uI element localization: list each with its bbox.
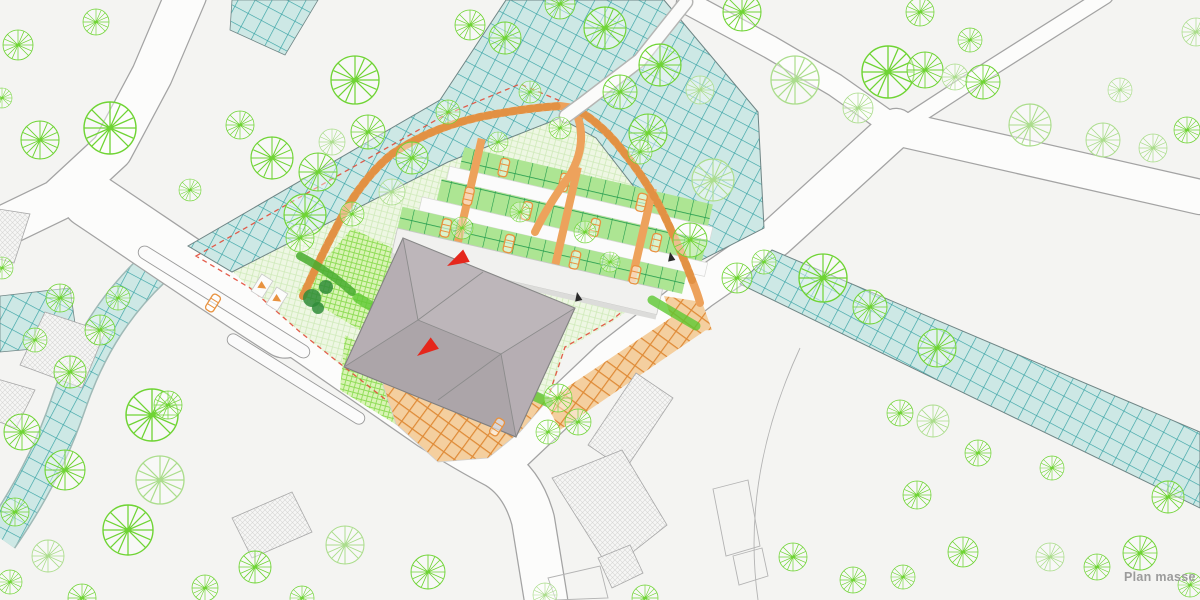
tree-bright <box>958 28 982 52</box>
tree-pale <box>1009 104 1051 146</box>
tree-bright <box>340 202 364 226</box>
tree-bright <box>1152 481 1184 513</box>
tree-pale <box>136 456 184 504</box>
tree-bright <box>906 0 934 26</box>
tree-bright <box>628 140 652 164</box>
tree-bright <box>544 384 572 412</box>
tree-bright <box>154 391 182 419</box>
tree-bright <box>396 142 428 174</box>
tree-bright <box>918 329 956 367</box>
tree-bright <box>510 202 530 222</box>
tree-pale <box>326 526 364 564</box>
tree-bright <box>948 537 978 567</box>
tree-bright <box>106 286 130 310</box>
tree-bright <box>853 290 887 324</box>
tree-bright <box>1174 117 1200 143</box>
tree-bright <box>83 9 109 35</box>
tree-bright <box>54 356 86 388</box>
shrub-dark <box>312 302 324 314</box>
tree-bright <box>455 10 485 40</box>
shrub-dark <box>319 280 333 294</box>
tree-bright <box>411 555 445 589</box>
tree-bright <box>4 414 40 450</box>
tree-bright <box>1 498 29 526</box>
tree-bright <box>179 179 201 201</box>
tree-bright <box>488 132 508 152</box>
tree-bright <box>226 111 254 139</box>
tree-bright <box>966 65 1000 99</box>
tree-bright <box>489 22 521 54</box>
site-plan-page: Plan masse <box>0 0 1200 600</box>
tree-bright <box>103 505 153 555</box>
tree-bright <box>549 117 571 139</box>
tree-pale <box>1036 543 1064 571</box>
tree-bright <box>23 328 47 352</box>
tree-bright <box>1123 536 1157 570</box>
tree-bright <box>21 121 59 159</box>
tree-bright <box>600 252 620 272</box>
tree-pale <box>843 93 873 123</box>
tree-bright <box>351 115 385 149</box>
tree-pale <box>942 64 968 90</box>
tree-pale <box>692 159 734 201</box>
tree-bright <box>887 400 913 426</box>
tree-bright <box>286 224 314 252</box>
tree-pale <box>686 76 714 104</box>
tree-pale <box>32 540 64 572</box>
tree-bright <box>907 52 943 88</box>
tree-bright <box>85 315 115 345</box>
tree-bright <box>299 153 337 191</box>
tree-bright <box>519 81 541 103</box>
tree-bright <box>673 223 707 257</box>
tree-bright <box>799 254 847 302</box>
tree-pale <box>917 405 949 437</box>
tree-bright <box>584 7 626 49</box>
tree-pale <box>319 129 345 155</box>
tree-bright <box>192 575 218 600</box>
tree-bright <box>45 450 85 490</box>
tree-bright <box>639 44 681 86</box>
tree-bright <box>0 570 22 594</box>
tree-pale <box>1108 78 1132 102</box>
tree-bright <box>903 481 931 509</box>
tree-bright <box>840 567 866 593</box>
plan-title-label: Plan masse <box>1124 570 1196 584</box>
tree-bright <box>1040 456 1064 480</box>
tree-bright <box>1084 554 1110 580</box>
tree-bright <box>251 137 293 179</box>
tree-bright <box>965 440 991 466</box>
tree-bright <box>891 565 915 589</box>
tree-bright <box>603 75 637 109</box>
tree-bright <box>574 221 596 243</box>
tree-bright <box>451 217 473 239</box>
tree-bright <box>722 263 752 293</box>
tree-bright <box>331 56 379 104</box>
tree-bright <box>46 284 74 312</box>
tree-bright <box>436 100 460 124</box>
tree-bright <box>565 409 591 435</box>
tree-bright <box>3 30 33 60</box>
tree-pale <box>379 179 405 205</box>
tree-pale <box>1139 134 1167 162</box>
tree-bright <box>862 46 914 98</box>
tree-pale <box>1086 123 1120 157</box>
tree-pale <box>771 56 819 104</box>
tree-bright <box>779 543 807 571</box>
site-plan-canvas <box>0 0 1200 600</box>
tree-bright <box>239 551 271 583</box>
tree-bright <box>536 420 560 444</box>
tree-bright <box>752 250 776 274</box>
tree-bright <box>84 102 136 154</box>
